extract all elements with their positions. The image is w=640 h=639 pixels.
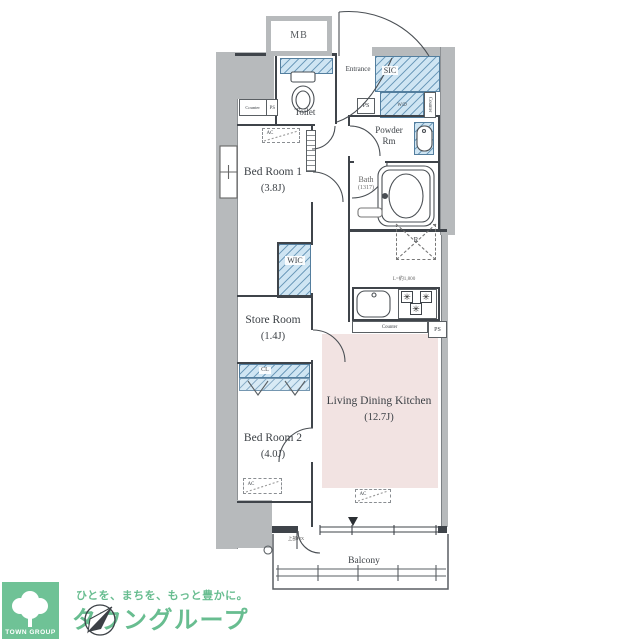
room-label-entrance: Entrance <box>336 65 380 73</box>
logo-company-ja: タウングループ <box>72 600 249 635</box>
room-label-storeroom: Store Room <box>234 314 312 327</box>
room-label-powder-rm: Rm <box>353 136 425 146</box>
kitchen-length-label: L=約1,800 <box>377 277 431 283</box>
bedroom2-closet-shelf <box>239 364 310 378</box>
bedroom1-door-swing <box>313 172 343 202</box>
exterior-wall <box>440 47 455 235</box>
wall <box>272 526 298 533</box>
room-label-balcony: Balcony <box>322 556 406 567</box>
wall <box>348 161 354 163</box>
toilet-shelf <box>280 58 333 74</box>
room-size-ldk: (12.7J) <box>320 412 438 424</box>
counter-label: Counter <box>246 105 261 110</box>
wall <box>438 526 447 533</box>
exterior-wall <box>216 52 274 99</box>
meter-box: MB <box>266 16 332 56</box>
pipe-space-box: PS <box>357 98 375 114</box>
ac-label: AC <box>357 492 368 498</box>
ps-label: PS <box>363 103 370 109</box>
powder-counter-box: Counter <box>424 92 436 118</box>
room-label-bath: Bath <box>350 175 382 184</box>
room-size-bedroom1: (3.8J) <box>234 183 312 195</box>
ac-label: AC <box>245 482 256 488</box>
wall <box>438 115 440 231</box>
wall <box>311 202 313 245</box>
stove-burner-icon: ✳ <box>410 303 422 315</box>
wall <box>385 161 440 163</box>
stove-burner-icon: ✳ <box>401 291 413 303</box>
plan-linework <box>0 0 640 639</box>
pipe-space-box: PS <box>266 99 278 116</box>
ps-label: PS <box>434 327 441 333</box>
bedroom2-closet-rail <box>239 378 310 391</box>
wall <box>237 501 313 503</box>
ps-label: PS <box>269 105 274 110</box>
room-label-toilet: Toilet <box>278 107 332 117</box>
exterior-wall <box>216 500 272 548</box>
wall <box>311 360 313 428</box>
room-size-storeroom: (1.4J) <box>234 331 312 343</box>
closet-label: CL <box>256 367 274 374</box>
wall <box>237 362 313 364</box>
kitchen-counter-front: Counter <box>352 321 428 333</box>
toilet-counter-box: Counter <box>239 99 267 116</box>
pipe-space-box: PS <box>428 321 447 338</box>
wall <box>237 124 313 126</box>
stove-burner-icon: ✳ <box>420 291 432 303</box>
walk-in-closet <box>278 244 311 296</box>
town-group-logo: TOWN GROUP <box>2 582 59 639</box>
room-label-bedroom2: Bed Room 2 <box>234 432 312 445</box>
logo-company-en: TOWN GROUP <box>2 629 59 636</box>
room-label-sic: SIC <box>378 66 402 75</box>
north-compass-icon <box>0 0 640 639</box>
wall <box>277 242 279 298</box>
wall <box>277 296 313 298</box>
wd-label: W/D <box>392 103 411 109</box>
floorplan-page: MB Counter PS PS Counter ✳ ✳ ✳ Counter P… <box>0 0 640 639</box>
toilet-icon <box>291 72 315 112</box>
wall <box>311 462 313 527</box>
room-label-wic: WIC <box>282 256 308 265</box>
ac-label: AC <box>264 131 275 137</box>
meter-box-label: MB <box>290 30 308 42</box>
exterior-wall <box>441 235 448 527</box>
counter-label: Counter <box>428 97 433 112</box>
ldk-balcony-windows <box>320 525 438 535</box>
room-label-ldk: Living Dining Kitchen <box>320 395 438 408</box>
wall <box>277 242 313 244</box>
counter-label: Counter <box>382 325 397 330</box>
ldk-floor-area <box>322 334 438 488</box>
room-size-bath: (1317) <box>350 185 382 192</box>
room-label-bedroom1: Bed Room 1 <box>234 166 312 179</box>
entry-direction-triangle <box>348 517 358 526</box>
room-label-powder: Powder <box>353 125 425 135</box>
room-size-bedroom2: (4.0J) <box>234 449 312 461</box>
refrigerator-label: R <box>408 236 424 244</box>
balcony-window-note: 上部FIX <box>284 537 308 542</box>
